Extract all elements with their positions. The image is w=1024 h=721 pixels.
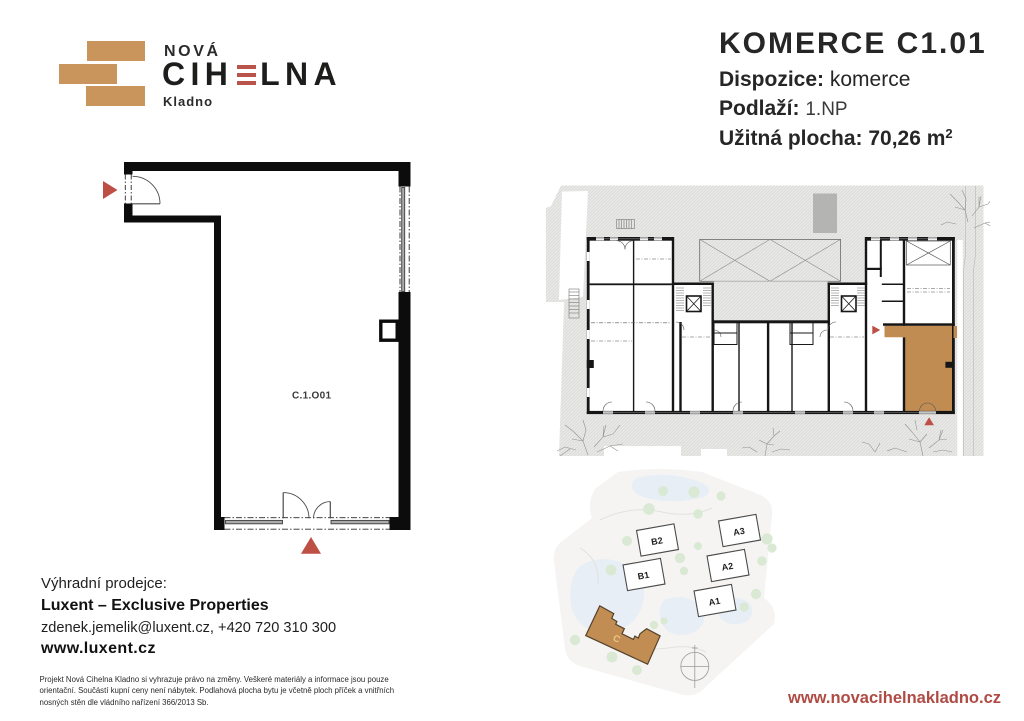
svg-text:C.1.O01: C.1.O01	[292, 391, 331, 402]
svg-text:A2: A2	[721, 561, 734, 573]
svg-text:A3: A3	[732, 526, 745, 538]
svg-text:A1: A1	[708, 596, 721, 608]
svg-text:B1: B1	[637, 570, 650, 582]
svg-text:B2: B2	[650, 535, 663, 547]
